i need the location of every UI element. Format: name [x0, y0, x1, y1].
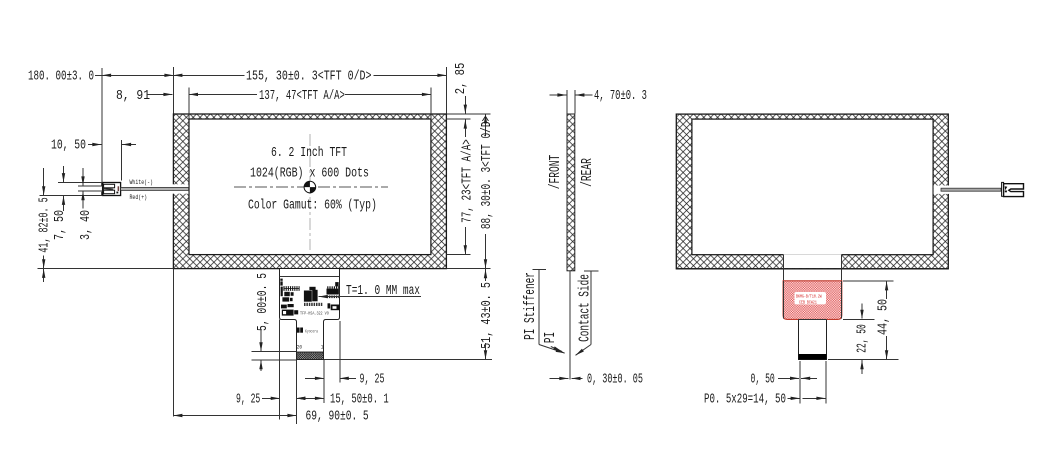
svg-text:PI Stiffener: PI Stiffener	[522, 272, 539, 340]
svg-text:155, 30±0. 3<TFT 0/D>: 155, 30±0. 3<TFT 0/D>	[246, 68, 372, 84]
svg-text:88, 30±0. 3<TFT 0/D>: 88, 30±0. 3<TFT 0/D>	[479, 116, 494, 229]
svg-text:4, 70±0. 3: 4, 70±0. 3	[594, 90, 647, 104]
svg-text:2, 85: 2, 85	[453, 63, 469, 95]
svg-text:77, 23<TFT A/A>: 77, 23<TFT A/A>	[460, 139, 475, 223]
svg-text:3, 40: 3, 40	[78, 210, 94, 240]
svg-text:41, 82±0. 5: 41, 82±0. 5	[38, 197, 52, 252]
svg-text:51, 43±0. 5: 51, 43±0. 5	[479, 282, 495, 349]
svg-text:CEB BCW21: CEB BCW21	[799, 301, 817, 306]
svg-text:Contact Side: Contact Side	[577, 274, 594, 342]
svg-text:8, 91: 8, 91	[116, 88, 150, 103]
svg-text:0, 30±0. 05: 0, 30±0. 05	[587, 373, 643, 387]
svg-text:Red(+): Red(+)	[130, 193, 148, 201]
svg-text:69, 90±0. 5: 69, 90±0. 5	[306, 408, 369, 424]
svg-text:180. 00±3. 0: 180. 00±3. 0	[28, 69, 94, 84]
svg-text:Kyocera: Kyocera	[305, 329, 318, 335]
svg-text:1: 1	[321, 344, 324, 351]
svg-text:PI: PI	[542, 332, 559, 343]
svg-text:P0. 5x29=14, 50: P0. 5x29=14, 50	[704, 392, 786, 407]
svg-text:5, 00±0. 5: 5, 00±0. 5	[254, 273, 270, 331]
svg-text:6. 2 Inch TFT: 6. 2 Inch TFT	[271, 145, 347, 161]
svg-text:TFP-HSA.322 VO: TFP-HSA.322 VO	[300, 312, 329, 316]
svg-text:1024(RGB) x 600 Dots: 1024(RGB) x 600 Dots	[250, 165, 369, 181]
svg-text:/FRONT: /FRONT	[547, 154, 564, 189]
svg-text:22, 50: 22, 50	[856, 324, 871, 352]
svg-text:7, 50: 7, 50	[52, 210, 68, 240]
svg-text:10, 50: 10, 50	[51, 137, 86, 153]
svg-text:44, 50: 44, 50	[875, 299, 891, 335]
svg-text:BKMG-B/T10.2W: BKMG-B/T10.2W	[796, 294, 822, 300]
svg-text:0, 50: 0, 50	[751, 373, 775, 388]
svg-text:/REAR: /REAR	[579, 158, 596, 187]
svg-text:9, 25: 9, 25	[236, 393, 260, 408]
svg-text:T=1. 0 MM max: T=1. 0 MM max	[346, 283, 420, 299]
svg-text:Color Gamut: 60% (Typ): Color Gamut: 60% (Typ)	[248, 197, 377, 213]
svg-text:20: 20	[297, 344, 302, 351]
svg-text:9, 25: 9, 25	[360, 373, 385, 387]
svg-text:15, 50±0. 1: 15, 50±0. 1	[330, 392, 389, 407]
svg-text:137, 47<TFT A/A>: 137, 47<TFT A/A>	[259, 88, 345, 103]
svg-text:White(-): White(-)	[130, 178, 153, 186]
